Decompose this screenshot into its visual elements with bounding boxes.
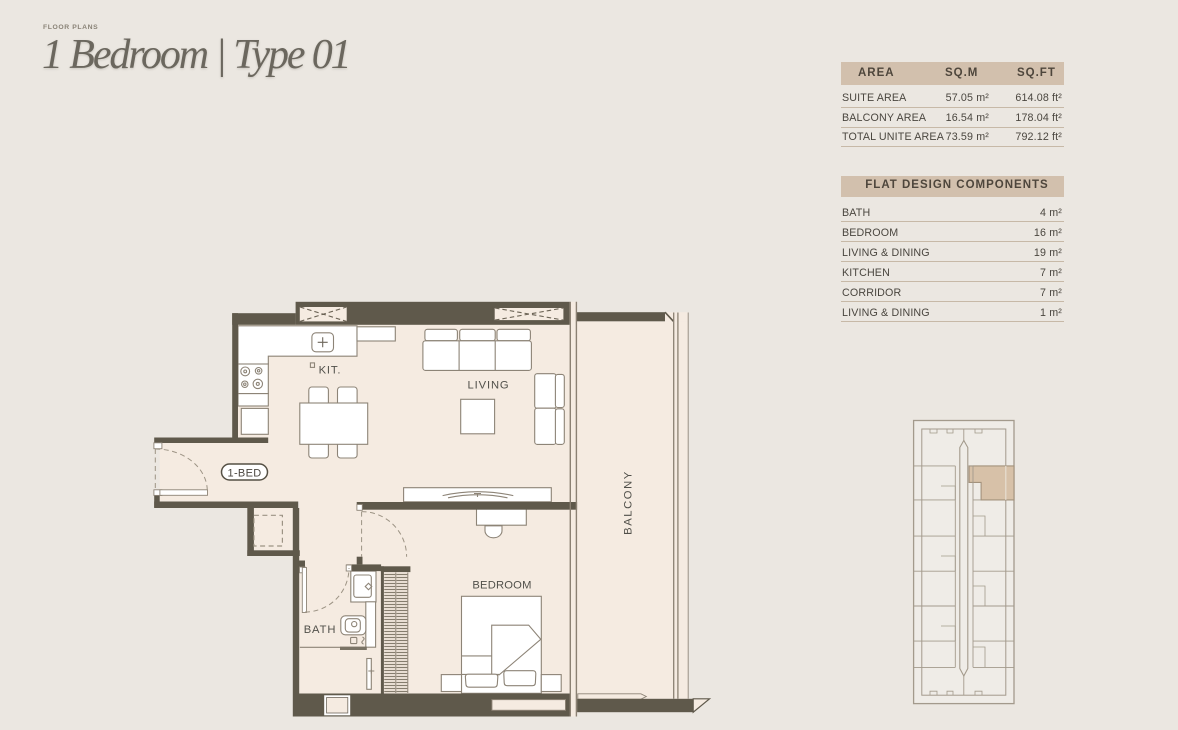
svg-text:1-BED: 1-BED: [228, 468, 262, 480]
svg-text:BALCONY: BALCONY: [623, 470, 635, 535]
svg-text:BATH: BATH: [304, 624, 337, 636]
svg-text:BEDROOM: BEDROOM: [472, 580, 531, 592]
svg-text:LIVING: LIVING: [467, 379, 509, 391]
svg-text:KIT.: KIT.: [319, 365, 342, 377]
